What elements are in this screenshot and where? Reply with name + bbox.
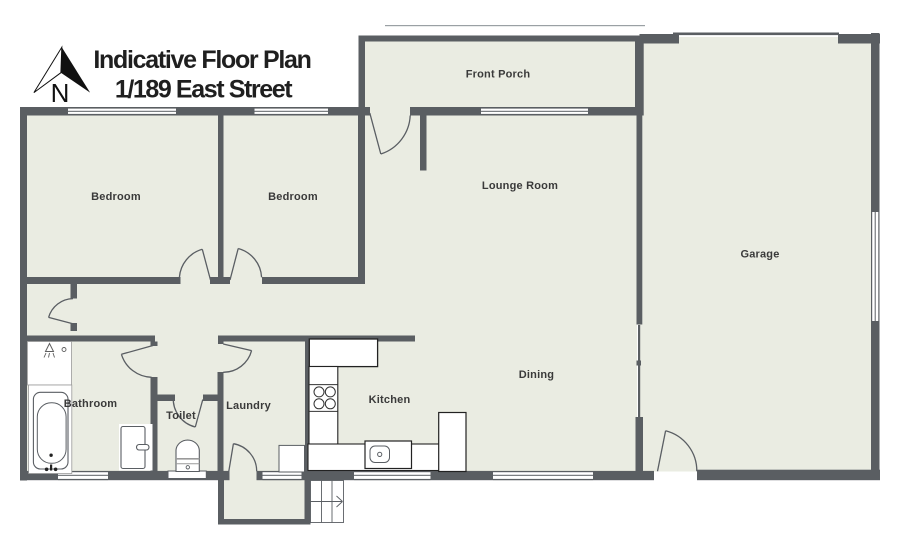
- svg-text:N: N: [51, 78, 70, 108]
- svg-text:Bathroom: Bathroom: [64, 398, 118, 410]
- svg-text:Front Porch: Front Porch: [466, 69, 531, 81]
- svg-text:1/189 East Street: 1/189 East Street: [115, 76, 293, 104]
- svg-text:Lounge Room: Lounge Room: [482, 180, 558, 192]
- svg-text:Indicative Floor Plan: Indicative Floor Plan: [93, 46, 310, 74]
- svg-text:Bedroom: Bedroom: [268, 191, 318, 203]
- svg-text:Laundry: Laundry: [226, 400, 271, 412]
- svg-text:Dining: Dining: [519, 369, 554, 381]
- svg-text:Bedroom: Bedroom: [91, 191, 141, 203]
- svg-text:Garage: Garage: [740, 249, 779, 261]
- svg-text:Toilet: Toilet: [166, 410, 196, 422]
- svg-text:Kitchen: Kitchen: [369, 394, 411, 406]
